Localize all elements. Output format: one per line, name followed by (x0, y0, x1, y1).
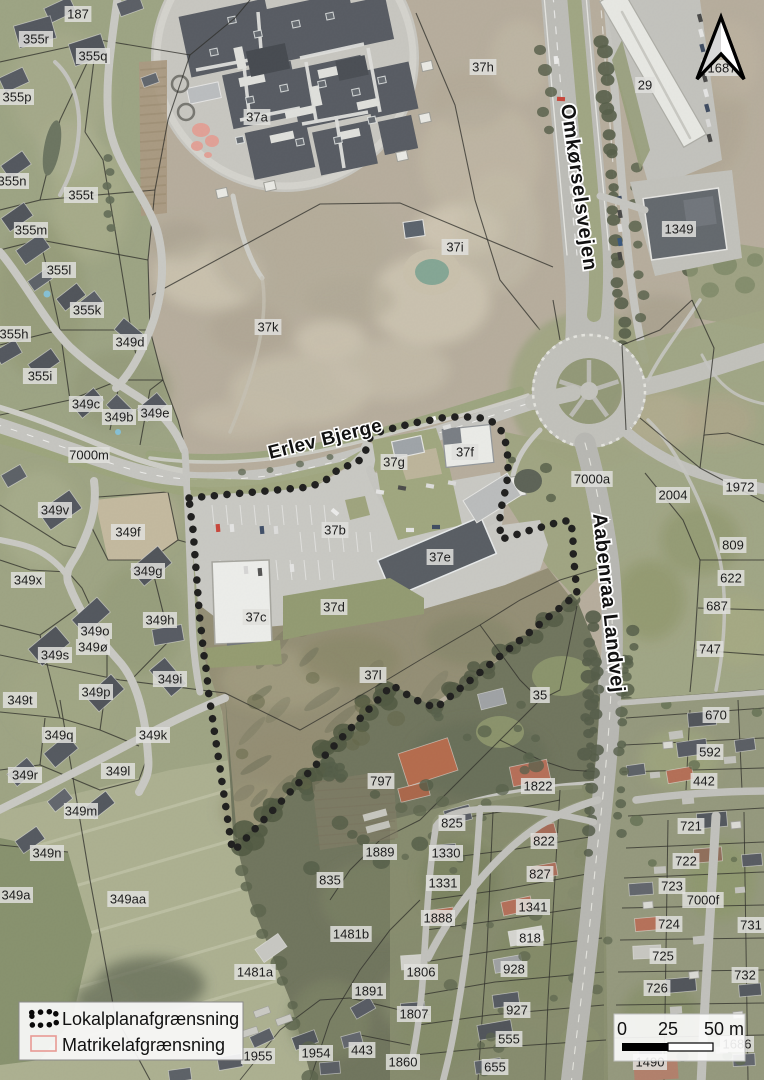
svg-text:1330: 1330 (432, 846, 461, 861)
svg-text:797: 797 (370, 774, 392, 789)
svg-text:1481a: 1481a (237, 965, 274, 980)
svg-text:827: 827 (529, 867, 551, 882)
svg-text:349a: 349a (2, 888, 32, 903)
svg-text:7000a: 7000a (574, 472, 611, 487)
svg-text:349q: 349q (45, 728, 74, 743)
svg-text:355h: 355h (0, 327, 28, 342)
svg-text:927: 927 (506, 1003, 528, 1018)
svg-text:349g: 349g (134, 564, 163, 579)
svg-text:1860: 1860 (389, 1055, 418, 1070)
svg-text:355p: 355p (3, 90, 32, 105)
svg-text:7000f: 7000f (687, 893, 720, 908)
svg-text:1349: 1349 (665, 222, 694, 237)
svg-text:1891: 1891 (355, 984, 384, 999)
svg-text:670: 670 (705, 708, 727, 723)
svg-text:Lokalplanafgrænsning: Lokalplanafgrænsning (62, 1009, 239, 1029)
svg-text:37b: 37b (324, 523, 346, 538)
svg-text:37a: 37a (246, 110, 268, 125)
svg-text:0: 0 (617, 1019, 627, 1039)
svg-text:349p: 349p (82, 685, 111, 700)
svg-text:349c: 349c (72, 397, 101, 412)
svg-text:349n: 349n (33, 846, 62, 861)
svg-text:349l: 349l (106, 764, 131, 779)
svg-text:1331: 1331 (429, 876, 458, 891)
svg-text:349r: 349r (12, 768, 39, 783)
svg-text:809: 809 (722, 538, 744, 553)
svg-text:37k: 37k (258, 320, 279, 335)
svg-text:355r: 355r (23, 32, 50, 47)
svg-text:37g: 37g (383, 455, 405, 470)
svg-text:1888: 1888 (424, 911, 453, 926)
svg-text:349i: 349i (158, 672, 183, 687)
svg-text:37d: 37d (323, 600, 345, 615)
svg-text:349s: 349s (41, 648, 70, 663)
svg-text:349ø: 349ø (78, 640, 108, 655)
svg-text:355t: 355t (68, 188, 94, 203)
svg-text:835: 835 (319, 873, 341, 888)
svg-text:349v: 349v (41, 503, 70, 518)
svg-text:355m: 355m (15, 223, 48, 238)
svg-text:822: 822 (533, 834, 555, 849)
svg-text:1972: 1972 (726, 480, 755, 495)
svg-text:37e: 37e (429, 550, 451, 565)
svg-text:723: 723 (661, 879, 683, 894)
svg-text:928: 928 (503, 962, 525, 977)
svg-text:722: 722 (675, 854, 697, 869)
svg-text:349m: 349m (65, 804, 98, 819)
svg-text:655: 655 (484, 1060, 506, 1075)
svg-text:443: 443 (351, 1043, 373, 1058)
svg-text:355k: 355k (73, 303, 102, 318)
svg-text:355i: 355i (28, 369, 53, 384)
svg-text:355l: 355l (47, 263, 72, 278)
svg-text:50 m: 50 m (704, 1019, 744, 1039)
svg-text:724: 724 (658, 917, 680, 932)
svg-text:1807: 1807 (400, 1007, 429, 1022)
svg-text:1822: 1822 (524, 779, 553, 794)
svg-text:349k: 349k (139, 728, 168, 743)
svg-text:721: 721 (680, 819, 702, 834)
svg-text:349aa: 349aa (110, 892, 147, 907)
svg-text:1806: 1806 (407, 965, 436, 980)
svg-text:442: 442 (693, 774, 715, 789)
svg-text:1341: 1341 (519, 900, 548, 915)
svg-text:349h: 349h (146, 613, 175, 628)
svg-text:825: 825 (441, 816, 463, 831)
svg-text:349d: 349d (116, 335, 145, 350)
svg-text:29: 29 (638, 78, 652, 93)
svg-text:37f: 37f (456, 445, 474, 460)
svg-text:355n: 355n (0, 174, 26, 189)
svg-text:726: 726 (646, 981, 668, 996)
svg-text:747: 747 (699, 642, 721, 657)
svg-text:187: 187 (67, 7, 89, 22)
svg-text:349b: 349b (105, 410, 134, 425)
svg-text:355q: 355q (79, 49, 108, 64)
svg-text:349e: 349e (141, 406, 170, 421)
svg-text:1889: 1889 (366, 845, 395, 860)
svg-text:37c: 37c (246, 610, 267, 625)
svg-text:731: 731 (740, 918, 762, 933)
svg-text:725: 725 (652, 949, 674, 964)
svg-text:622: 622 (720, 571, 742, 586)
svg-text:1955: 1955 (244, 1049, 273, 1064)
svg-text:37h: 37h (472, 60, 494, 75)
svg-text:592: 592 (699, 745, 721, 760)
svg-text:2004: 2004 (659, 488, 688, 503)
svg-text:7000m: 7000m (69, 448, 109, 463)
svg-text:349f: 349f (115, 525, 141, 540)
svg-text:1954: 1954 (302, 1046, 331, 1061)
svg-text:687: 687 (706, 599, 728, 614)
svg-text:349t: 349t (7, 693, 33, 708)
svg-text:555: 555 (498, 1032, 520, 1047)
svg-text:Matrikelafgrænsning: Matrikelafgrænsning (62, 1035, 225, 1055)
svg-text:818: 818 (519, 931, 541, 946)
svg-text:37l: 37l (364, 668, 381, 683)
svg-text:349x: 349x (14, 573, 43, 588)
svg-text:732: 732 (734, 968, 756, 983)
svg-text:35: 35 (533, 688, 547, 703)
svg-text:349o: 349o (81, 624, 110, 639)
svg-text:37i: 37i (446, 240, 463, 255)
svg-text:1481b: 1481b (333, 927, 369, 942)
svg-text:25: 25 (658, 1019, 678, 1039)
